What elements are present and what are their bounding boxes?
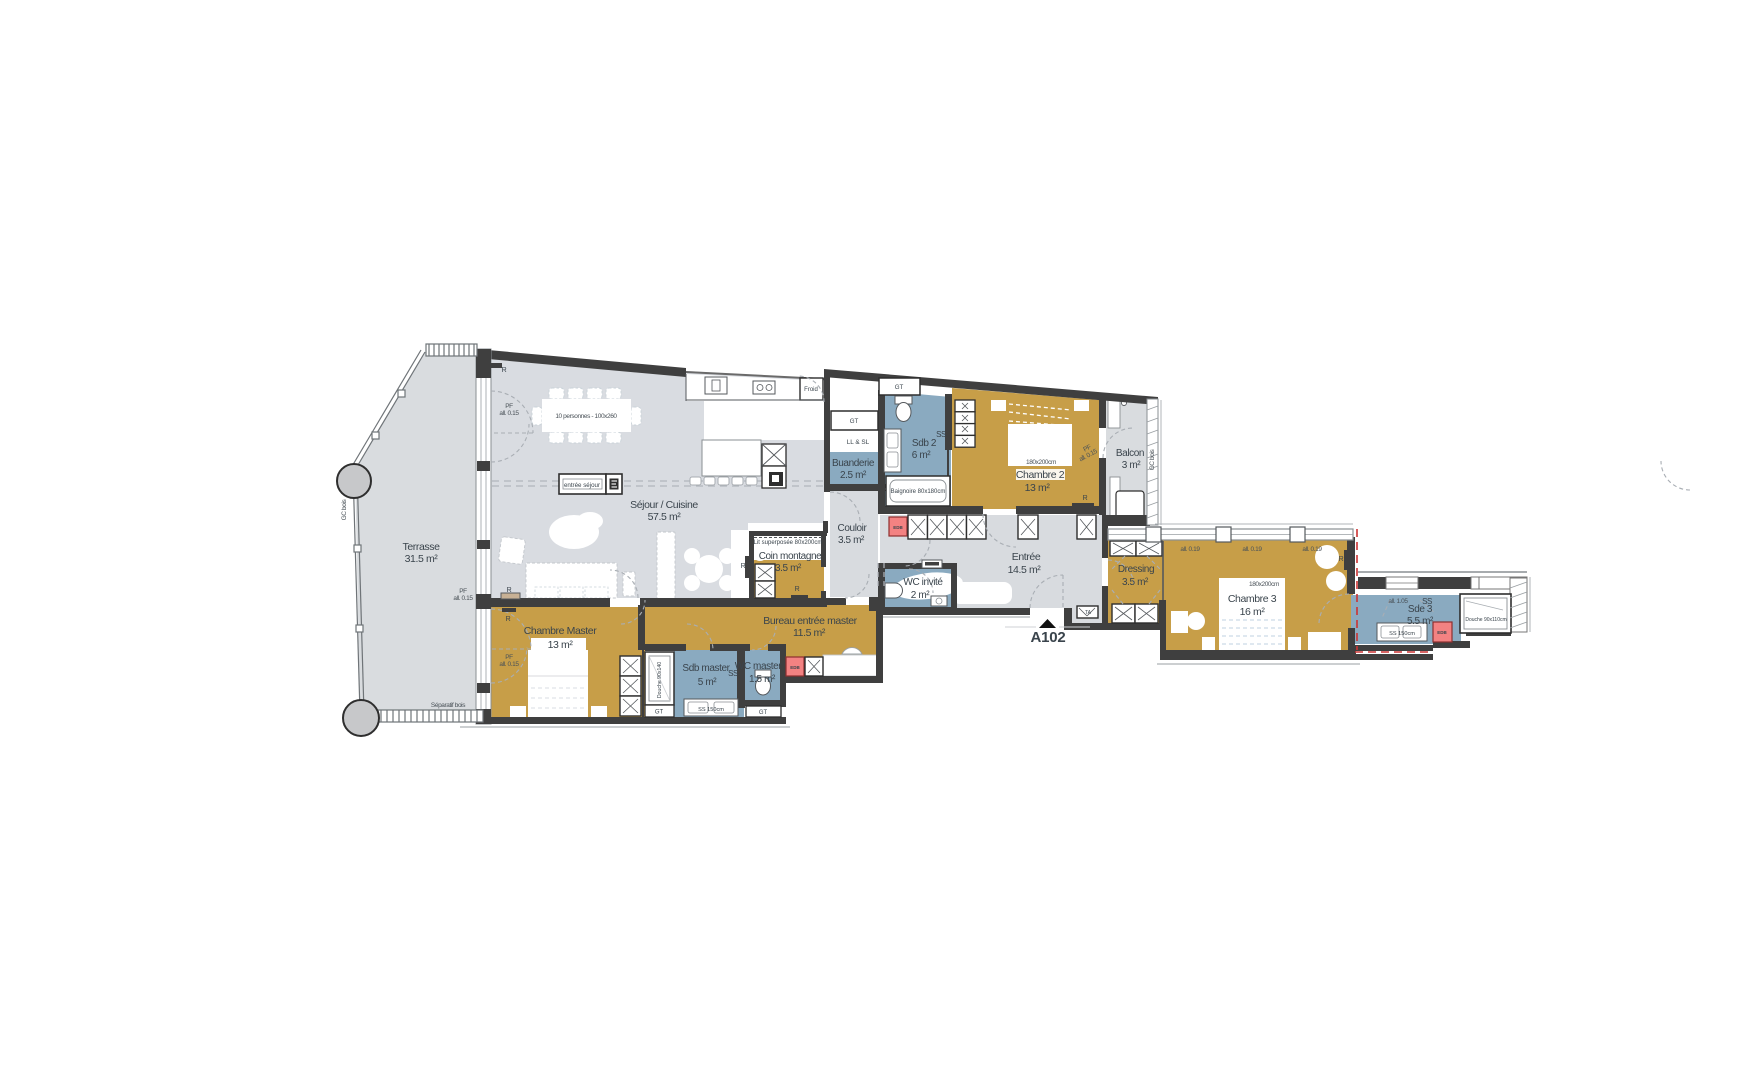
svg-text:R: R xyxy=(1083,495,1088,502)
svg-text:Froid: Froid xyxy=(804,387,818,393)
svg-text:14.5 m²: 14.5 m² xyxy=(1008,564,1042,576)
svg-text:SS: SS xyxy=(1422,597,1432,606)
svg-text:180x200cm: 180x200cm xyxy=(1026,459,1056,466)
svg-text:1.5 m²: 1.5 m² xyxy=(749,674,776,685)
svg-text:PF: PF xyxy=(505,654,513,661)
svg-text:5 m²: 5 m² xyxy=(698,677,717,688)
svg-text:Chambre 3: Chambre 3 xyxy=(1228,593,1277,605)
svg-text:SS: SS xyxy=(936,430,946,439)
svg-text:entrée séjour: entrée séjour xyxy=(564,482,600,489)
svg-text:Baignoire 80x180cm: Baignoire 80x180cm xyxy=(891,489,946,495)
svg-text:EDB: EDB xyxy=(790,665,800,670)
svg-text:PF: PF xyxy=(505,403,513,410)
svg-text:57.5 m²: 57.5 m² xyxy=(648,511,682,523)
svg-text:Balcon: Balcon xyxy=(1116,448,1144,459)
svg-text:EDB: EDB xyxy=(1437,630,1447,635)
svg-text:SS 150cm: SS 150cm xyxy=(698,707,724,713)
svg-text:Buanderie: Buanderie xyxy=(832,458,875,469)
svg-text:TA: TA xyxy=(1085,610,1092,616)
svg-text:2.5 m²: 2.5 m² xyxy=(840,470,867,481)
svg-text:Terrasse: Terrasse xyxy=(402,541,440,553)
svg-text:all. 0.19: all. 0.19 xyxy=(1180,546,1200,553)
svg-text:Sdb 2: Sdb 2 xyxy=(912,438,937,449)
svg-text:180x200cm: 180x200cm xyxy=(1249,581,1279,588)
svg-text:R: R xyxy=(741,563,746,570)
svg-text:all. 0.19: all. 0.19 xyxy=(1302,546,1322,553)
svg-text:Bureau entrée master: Bureau entrée master xyxy=(763,615,857,627)
svg-text:GC bois: GC bois xyxy=(1149,449,1156,471)
svg-text:Couloir: Couloir xyxy=(838,523,868,534)
svg-text:31.5 m²: 31.5 m² xyxy=(405,553,439,565)
svg-text:Coin montagne: Coin montagne xyxy=(759,551,822,562)
svg-text:GC bois: GC bois xyxy=(341,499,348,521)
svg-text:Entrée: Entrée xyxy=(1012,551,1041,563)
svg-text:WC master: WC master xyxy=(735,661,782,672)
svg-text:16 m²: 16 m² xyxy=(1240,606,1266,618)
svg-text:WC invité: WC invité xyxy=(903,577,943,588)
svg-text:LL & SL: LL & SL xyxy=(847,439,870,446)
svg-text:3.5 m²: 3.5 m² xyxy=(1122,577,1149,588)
svg-text:2 m²: 2 m² xyxy=(911,590,930,601)
svg-text:EDB: EDB xyxy=(893,525,903,530)
svg-text:GT: GT xyxy=(895,384,904,391)
svg-text:5.5 m²: 5.5 m² xyxy=(1407,616,1434,627)
svg-text:10 personnes - 100x260: 10 personnes - 100x260 xyxy=(555,413,617,420)
svg-text:Dressing: Dressing xyxy=(1118,564,1154,575)
svg-text:GT: GT xyxy=(655,710,664,716)
svg-text:all. 1.05: all. 1.05 xyxy=(1388,598,1408,605)
svg-text:Sdb master: Sdb master xyxy=(682,663,730,674)
svg-text:13 m²: 13 m² xyxy=(548,639,574,651)
svg-text:R: R xyxy=(502,367,507,374)
svg-text:Douche 90x110cm: Douche 90x110cm xyxy=(1465,617,1506,623)
svg-text:Lit superposée 80x200cm: Lit superposée 80x200cm xyxy=(754,540,823,546)
svg-text:Chambre 2: Chambre 2 xyxy=(1016,469,1065,481)
svg-text:3 m²: 3 m² xyxy=(1122,460,1141,471)
svg-text:GT: GT xyxy=(850,418,859,425)
svg-text:3.5 m²: 3.5 m² xyxy=(775,563,802,574)
svg-text:all. 0.19: all. 0.19 xyxy=(1242,546,1262,553)
svg-text:Séparatif bois: Séparatif bois xyxy=(431,702,466,709)
svg-text:A102: A102 xyxy=(1030,629,1065,646)
svg-text:SS 150cm: SS 150cm xyxy=(1389,631,1415,637)
svg-text:Douche 90x140: Douche 90x140 xyxy=(657,662,663,698)
svg-text:R: R xyxy=(507,587,512,594)
svg-text:13 m²: 13 m² xyxy=(1025,482,1051,494)
svg-text:6 m²: 6 m² xyxy=(912,450,931,461)
svg-text:all. 0.15: all. 0.15 xyxy=(499,410,519,417)
svg-text:GT: GT xyxy=(759,710,768,716)
svg-text:Séjour / Cuisine: Séjour / Cuisine xyxy=(630,499,698,511)
svg-text:R: R xyxy=(506,616,511,623)
svg-text:all. 0.15: all. 0.15 xyxy=(453,595,473,602)
svg-text:PF: PF xyxy=(459,588,467,595)
svg-text:Chambre Master: Chambre Master xyxy=(524,625,597,637)
svg-text:3.5 m²: 3.5 m² xyxy=(838,535,865,546)
svg-text:11.5 m²: 11.5 m² xyxy=(793,627,826,639)
svg-text:all. 0.15: all. 0.15 xyxy=(499,661,519,668)
svg-text:SS: SS xyxy=(728,669,738,678)
svg-text:R: R xyxy=(795,586,800,593)
svg-text:R: R xyxy=(1339,556,1344,563)
